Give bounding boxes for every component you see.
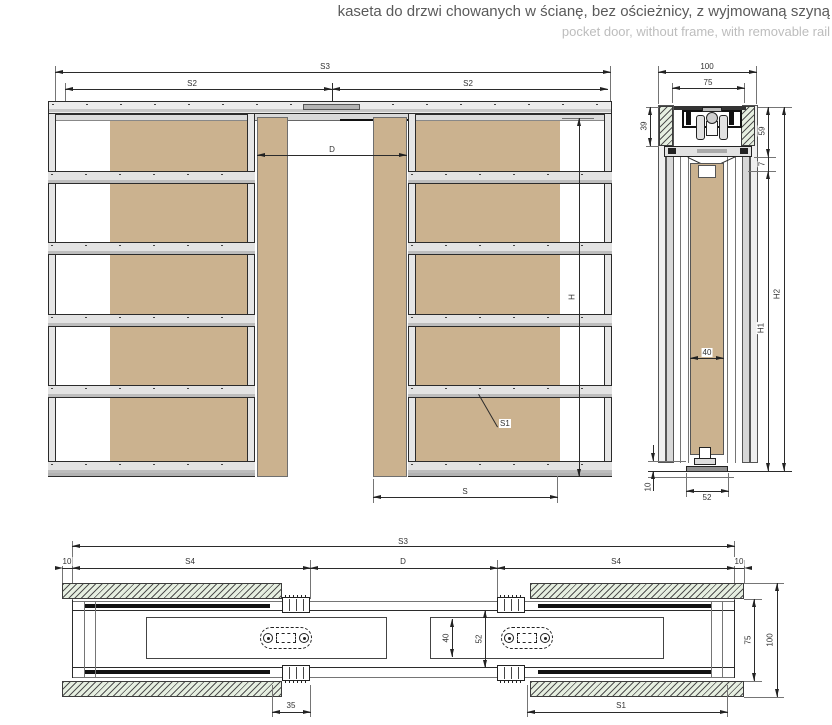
- end-cap-line: [722, 601, 723, 678]
- pocket-face-line: [72, 667, 734, 668]
- arrowhead: [450, 649, 454, 657]
- screw-dot: [303, 637, 306, 640]
- arrowhead: [527, 710, 535, 714]
- mounting-block: [740, 148, 748, 154]
- dim-line: [55, 72, 611, 73]
- arrowhead: [766, 463, 770, 471]
- cassette-left-outer-post: [48, 114, 56, 477]
- wall-board: [750, 105, 758, 463]
- arrowhead: [690, 356, 698, 360]
- arrowhead: [651, 453, 655, 461]
- ext-line: [754, 157, 776, 158]
- arrowhead: [727, 544, 735, 548]
- cassette-end-line: [734, 600, 735, 678]
- arrowhead: [483, 660, 487, 668]
- dim-label-plan-100: 100: [766, 632, 775, 647]
- jamb-profile: [282, 665, 310, 681]
- ext-line: [728, 473, 729, 497]
- ext-line: [744, 681, 762, 682]
- dim-label-h: H: [568, 293, 577, 301]
- horizontal-rail: [48, 171, 255, 184]
- arrowhead: [720, 710, 728, 714]
- arrowhead: [775, 583, 779, 591]
- arrowhead: [744, 566, 752, 570]
- ext-line: [758, 107, 792, 108]
- dim-line: [527, 712, 728, 713]
- arrowhead: [672, 86, 680, 90]
- dim-label-s1-leader: S1: [499, 419, 511, 428]
- arrowhead: [752, 599, 756, 607]
- arrowhead: [648, 138, 652, 146]
- arrowhead: [749, 70, 757, 74]
- track-line: [72, 601, 734, 602]
- arrowhead: [648, 107, 652, 115]
- horizontal-rail: [48, 385, 255, 398]
- dim-line: [658, 72, 757, 73]
- dim-label-10-right: 10: [734, 557, 745, 566]
- wall-board: [666, 105, 674, 463]
- dim-label-100: 100: [699, 62, 714, 71]
- dim-label-s4-right: S4: [610, 557, 622, 566]
- arrowhead: [272, 710, 280, 714]
- arrowhead: [658, 70, 666, 74]
- flush-pull-recess: [276, 633, 296, 643]
- screw-dot: [544, 637, 547, 640]
- ext-line: [648, 461, 686, 462]
- end-cap-line: [84, 601, 85, 678]
- dim-line: [768, 157, 769, 471]
- horizontal-rail: [408, 171, 612, 184]
- jamb-profile: [497, 665, 525, 681]
- arrowhead: [600, 87, 608, 91]
- dim-label-7: 7: [758, 161, 767, 167]
- dim-line: [784, 107, 785, 471]
- dim-label-35: 35: [286, 701, 297, 710]
- dim-label-s3: S3: [319, 62, 331, 71]
- hanger-recess: [698, 165, 716, 178]
- stud-hatch: [741, 106, 755, 146]
- arrowhead: [450, 619, 454, 627]
- dim-label-75: 75: [703, 78, 714, 87]
- wall-board: [742, 105, 750, 463]
- dim-label-plan-75: 75: [744, 635, 753, 646]
- ext-line: [744, 697, 784, 698]
- dim-label-h2: H2: [773, 288, 782, 300]
- dim-line: [777, 583, 778, 697]
- arrowhead: [752, 673, 756, 681]
- face-board-bar: [538, 604, 711, 608]
- arrowhead: [577, 469, 581, 477]
- dim-line: [332, 89, 608, 90]
- arrowhead: [782, 463, 786, 471]
- arrowhead: [55, 566, 63, 570]
- dim-label-d: D: [328, 145, 336, 154]
- dim-line: [72, 546, 735, 547]
- arrowhead: [332, 87, 340, 91]
- arrowhead: [72, 566, 80, 570]
- dim-label-s2-left: S2: [186, 79, 198, 88]
- dim-label-s: S: [461, 487, 468, 496]
- pocket-face-line: [72, 610, 734, 611]
- trolley-lobe: [719, 115, 728, 140]
- dim-line: [62, 568, 744, 569]
- arrowhead: [303, 710, 311, 714]
- dim-label-h1: H1: [757, 322, 766, 334]
- wall-board: [658, 105, 666, 463]
- arrowhead: [775, 689, 779, 697]
- cassette-end-line: [72, 600, 73, 678]
- arrowhead: [55, 70, 63, 74]
- arrowhead: [766, 149, 770, 157]
- dim-label-plan-s3: S3: [397, 537, 409, 546]
- dim-label-s2-right: S2: [462, 79, 474, 88]
- drawing-title-block: kaseta do drzwi chowanych w ścianę, bez …: [2, 3, 830, 39]
- dim-label-39: 39: [640, 121, 649, 132]
- arrowhead: [737, 86, 745, 90]
- track-rail-leg: [686, 112, 691, 125]
- dim-label-s4-left: S4: [184, 557, 196, 566]
- arrowhead: [686, 489, 694, 493]
- jamb-profile: [497, 597, 525, 613]
- dim-label-52: 52: [702, 493, 713, 502]
- dim-line: [373, 497, 558, 498]
- arrowhead: [651, 471, 655, 479]
- mounting-block: [668, 148, 676, 154]
- horizontal-rail: [408, 314, 612, 327]
- horizontal-rail: [408, 385, 612, 398]
- flush-pull-recess: [517, 633, 537, 643]
- trolley-roller: [706, 112, 718, 124]
- horizontal-rail: [408, 242, 612, 255]
- technical-drawing-page: kaseta do drzwi chowanych w ścianę, bez …: [0, 0, 832, 725]
- dim-label-59: 59: [758, 126, 767, 137]
- floor-line: [648, 471, 792, 472]
- arrowhead: [483, 610, 487, 618]
- trolley-lobe: [696, 115, 705, 140]
- dim-label-10-left: 10: [62, 557, 73, 566]
- horizontal-rail: [48, 314, 255, 327]
- dim-line: [257, 155, 407, 156]
- end-cap-line: [95, 601, 96, 678]
- title-polish: kaseta do drzwi chowanych w ścianę, bez …: [2, 3, 830, 20]
- ext-line: [373, 479, 374, 503]
- wall-hatch: [62, 583, 282, 599]
- dim-label-10: 10: [644, 482, 653, 493]
- arrowhead: [373, 495, 381, 499]
- dim-line: [754, 599, 755, 681]
- track-line: [72, 677, 734, 678]
- cassette-right-outer-post: [604, 114, 612, 477]
- door-leaf-left-edge: [257, 117, 288, 477]
- face-board-bar: [84, 604, 270, 608]
- arrowhead: [782, 107, 786, 115]
- wall-hatch: [62, 681, 282, 697]
- ext-line: [748, 171, 776, 172]
- face-board-bar: [84, 670, 270, 674]
- cassette-left-jamb-post: [247, 114, 255, 477]
- arrowhead: [766, 171, 770, 179]
- dim-label-40: 40: [702, 348, 713, 357]
- pocket-profile-line: [688, 157, 689, 463]
- pocket-profile-line: [735, 157, 736, 463]
- arrowhead: [603, 70, 611, 74]
- track-rail-leg: [729, 112, 734, 125]
- ext-line: [646, 146, 659, 147]
- jamb-profile: [282, 597, 310, 613]
- arrowhead: [577, 118, 581, 126]
- arrowhead: [399, 153, 407, 157]
- arrowhead: [766, 107, 770, 115]
- door-leaf-right-edge: [373, 117, 407, 477]
- stud-hatch: [659, 106, 673, 146]
- arrowhead: [716, 356, 724, 360]
- cassette-right-base-strip: [408, 473, 612, 477]
- arrowhead: [65, 87, 73, 91]
- arrowhead: [310, 566, 318, 570]
- title-english: pocket door, without frame, with removab…: [2, 24, 830, 39]
- screw-dot: [508, 637, 511, 640]
- floor-guide-flange: [694, 458, 716, 465]
- rail-center-plate: [303, 104, 360, 110]
- dim-line: [672, 88, 745, 89]
- floor-line-2: [648, 477, 734, 478]
- dim-line: [579, 118, 580, 477]
- arrowhead: [550, 495, 558, 499]
- arrowhead: [497, 566, 505, 570]
- cassette-right-jamb-post: [408, 114, 416, 477]
- arrowhead: [721, 489, 729, 493]
- cassette-left-base-strip: [48, 473, 255, 477]
- horizontal-rail: [48, 242, 255, 255]
- dim-line: [65, 89, 332, 90]
- dim-label-plan-52: 52: [475, 634, 484, 645]
- arrowhead: [324, 87, 332, 91]
- arrowhead: [257, 153, 265, 157]
- screw-dot: [267, 637, 270, 640]
- dim-label-plan-40: 40: [442, 633, 451, 644]
- face-board-bar: [538, 670, 711, 674]
- pocket-profile-line: [680, 157, 681, 463]
- dim-label-plan-d: D: [399, 557, 407, 566]
- pocket-profile-line: [727, 157, 728, 463]
- mounting-plate-center: [697, 149, 727, 153]
- door-leaf-section: [690, 163, 724, 455]
- dim-label-plan-s1: S1: [615, 701, 627, 710]
- arrowhead: [727, 566, 735, 570]
- arrowhead: [72, 544, 80, 548]
- end-cap-line: [711, 601, 712, 678]
- wall-hatch: [530, 583, 744, 599]
- ext-line: [65, 83, 66, 101]
- ext-line: [686, 473, 687, 497]
- wall-hatch: [530, 681, 744, 697]
